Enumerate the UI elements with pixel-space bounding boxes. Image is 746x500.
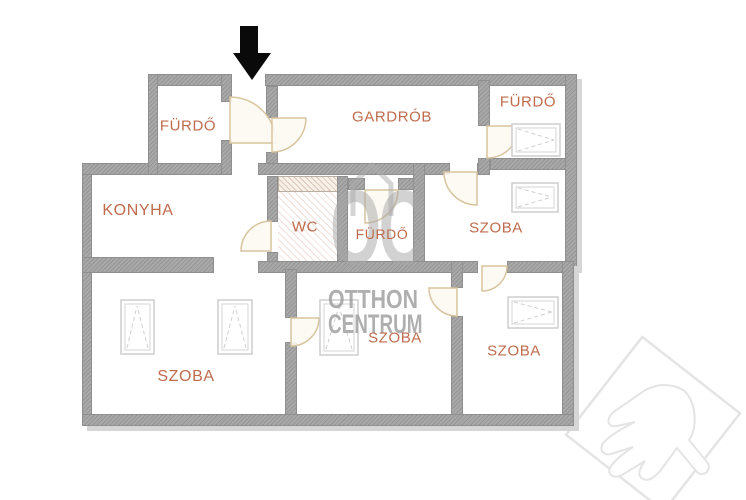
door-arc-icon <box>291 318 319 346</box>
room-label-room-bottom-right: SZOBA <box>487 343 541 360</box>
door-arc-icon <box>444 172 477 205</box>
window-icon <box>512 183 558 212</box>
window-icon <box>218 300 252 354</box>
entrance-arrow-shaft <box>240 26 258 54</box>
door-arc-icon <box>272 118 306 152</box>
room-label-toilet: WC <box>292 219 318 236</box>
door-arc-icon <box>482 266 507 291</box>
door-arc-icon <box>241 221 271 251</box>
room-label-bathroom-middle: FÜRDŐ <box>356 226 409 242</box>
entrance-arrow-head <box>233 53 271 80</box>
window-icon <box>508 297 558 328</box>
room-label-bathroom-top-right: FÜRDŐ <box>500 94 556 111</box>
window-icon <box>512 124 560 156</box>
room-label-wardrobe: GARDRÓB <box>352 109 432 126</box>
room-label-kitchen: KONYHA <box>102 202 173 220</box>
room-label-room-bottom-middle: SZOBA <box>368 330 422 347</box>
window-icon <box>121 300 154 354</box>
door-arc-icon <box>230 97 276 143</box>
door-arc-icon <box>429 288 457 316</box>
floorplan-canvas: OC OTTHON CENTRUM FÜRDŐ GARDRÓB FÜRDŐ KO… <box>0 0 746 500</box>
room-label-bathroom-top-left: FÜRDŐ <box>160 118 216 135</box>
room-label-room-middle-right: SZOBA <box>469 220 523 237</box>
room-label-room-bottom-left: SZOBA <box>157 368 214 386</box>
